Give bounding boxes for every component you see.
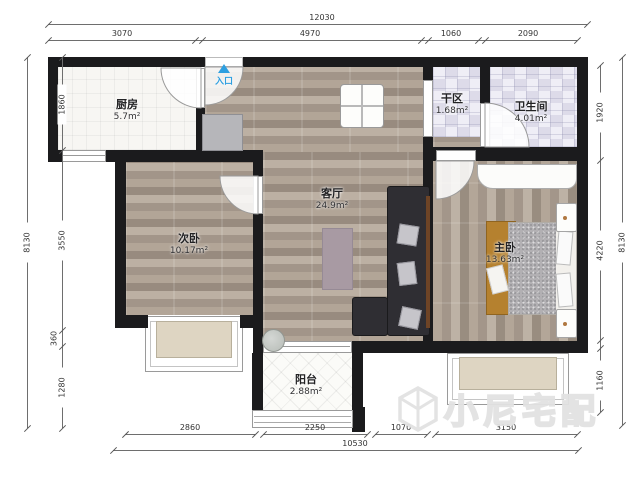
wall-bottom xyxy=(352,341,588,353)
plant-icon xyxy=(262,329,285,352)
kitchen-floor xyxy=(58,67,196,150)
living-room-rug xyxy=(322,228,353,290)
second-bedroom-door-leaf xyxy=(253,176,263,214)
dim-top-outer-line xyxy=(48,24,587,25)
tick xyxy=(24,425,31,432)
balcony-window xyxy=(252,410,353,428)
balcony-floor xyxy=(263,353,352,410)
watermark-text: 小尼宅配 xyxy=(444,384,600,433)
dim-right-seg-2: 4220 xyxy=(596,231,605,271)
dim-right-total: 8130 xyxy=(618,223,627,263)
sofa-back-trim xyxy=(426,196,430,328)
master-bed-pillow-1 xyxy=(556,230,574,265)
kitchen-window-mullion xyxy=(63,155,105,156)
master-door-leaf xyxy=(436,150,476,161)
kitchen-door-leaf xyxy=(196,68,205,108)
master-wardrobe xyxy=(477,164,577,189)
master-bed-pillow-2 xyxy=(556,272,574,307)
wall-bedroom-right-lower xyxy=(253,214,263,353)
dim-top-seg-1: 3070 xyxy=(112,29,132,38)
wall-kitchen-left xyxy=(48,57,58,162)
dim-left-seg-3: 360 xyxy=(50,319,59,359)
tick xyxy=(584,21,591,28)
dim-left-total: 8130 xyxy=(23,223,32,263)
sofa-chaise xyxy=(352,297,388,336)
dining-table-divider-h xyxy=(341,105,383,107)
dim-top-seg-3: 1060 xyxy=(441,29,461,38)
tick xyxy=(364,431,371,438)
shoe-cabinet xyxy=(202,114,243,151)
dry-area-opening xyxy=(423,80,433,137)
nightstand-top xyxy=(556,203,577,232)
dim-bottom-seg-2: 2250 xyxy=(305,423,325,432)
dim-top-seg-2: 4970 xyxy=(300,29,320,38)
wall-bedroom-right-upper xyxy=(253,150,263,176)
wall-bedroom-left xyxy=(115,162,126,328)
sofa-pillow-1 xyxy=(397,224,420,247)
kitchen-window xyxy=(62,150,106,162)
nightstand-bottom xyxy=(556,309,577,338)
dim-right-seg-1: 1920 xyxy=(596,93,605,133)
dim-bottom-seg-line-4 xyxy=(435,434,577,435)
master-bed xyxy=(508,222,577,315)
wall-top xyxy=(48,57,588,67)
dim-bottom-seg-line-3 xyxy=(375,434,427,435)
nightstand-top-knob xyxy=(563,216,567,220)
wall-right-outer xyxy=(577,57,588,353)
wall-bedroom-bottom-l xyxy=(115,315,148,328)
tick xyxy=(575,447,582,454)
dim-top-total: 12030 xyxy=(309,13,334,22)
balcony-window-mullion-1 xyxy=(254,416,351,417)
dim-bottom-total: 10530 xyxy=(342,439,367,448)
tick xyxy=(619,422,626,429)
dim-top-seg-4: 2090 xyxy=(518,29,538,38)
tick xyxy=(59,425,66,432)
dim-bottom-outer-line xyxy=(113,450,578,451)
sofa-pillow-3 xyxy=(398,306,422,330)
watermark-cube-icon xyxy=(396,385,440,433)
watermark: 小尼宅配 xyxy=(396,384,600,433)
wall-balcony-corner xyxy=(352,407,365,432)
dim-left-seg-1: 1860 xyxy=(58,85,67,125)
tick xyxy=(574,37,581,44)
entry-arrow-icon xyxy=(218,64,230,73)
dim-left-seg-4: 1280 xyxy=(58,368,67,408)
wall-balcony-left xyxy=(252,353,263,416)
wall-center-upper xyxy=(423,57,433,80)
entry-label: 入口 xyxy=(205,74,243,87)
bedroom-bay-window-sill xyxy=(156,321,232,358)
entry-marker: 入口 xyxy=(205,64,243,87)
dim-bottom-seg-line-2 xyxy=(263,434,367,435)
dining-table xyxy=(340,84,384,128)
dim-left-seg-2: 3550 xyxy=(58,221,67,261)
master-bed-blanket xyxy=(509,223,556,314)
second-bedroom-floor xyxy=(125,162,253,315)
tick xyxy=(252,431,259,438)
balcony-window-mullion-2 xyxy=(254,422,351,423)
wall-balcony-right xyxy=(352,353,363,407)
wall-drybath-divider xyxy=(480,67,490,103)
dim-top-inner-line xyxy=(48,40,577,41)
dry-area-floor xyxy=(433,67,480,137)
nightstand-bottom-knob xyxy=(563,322,567,326)
dim-bottom-seg-1: 2860 xyxy=(180,423,200,432)
bathroom-door-leaf xyxy=(480,103,490,147)
sofa-pillow-2 xyxy=(397,261,418,286)
dim-bottom-seg-line-1 xyxy=(125,434,255,435)
floor-plan: 入口 厨房 5.7m² 干区 1.68m² 卫生间 4.01m² 客厅 24.9… xyxy=(0,0,640,494)
bathroom-floor xyxy=(490,67,577,147)
